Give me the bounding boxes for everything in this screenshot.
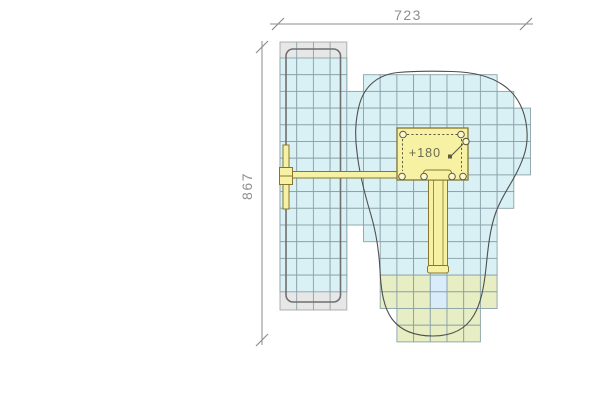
mat-tile xyxy=(330,258,347,275)
safety-tile xyxy=(514,125,531,142)
safety-tile xyxy=(464,108,481,125)
safety-tile xyxy=(480,91,497,108)
safety-tile xyxy=(397,225,414,242)
safety-tile xyxy=(497,125,514,142)
slide-entrance xyxy=(424,170,452,180)
impact-tile xyxy=(414,292,431,309)
safety-tile xyxy=(464,258,481,275)
safety-tile xyxy=(397,258,414,275)
mat-tile xyxy=(280,91,297,108)
safety-tile xyxy=(447,108,464,125)
firemans-pole xyxy=(463,138,469,144)
safety-tile xyxy=(430,91,447,108)
safety-tile xyxy=(480,258,497,275)
site-plan-drawing: +180723867 xyxy=(0,0,600,400)
safety-tile xyxy=(414,91,431,108)
safety-tile xyxy=(480,125,497,142)
safety-tile xyxy=(447,75,464,92)
mat-tile xyxy=(330,142,347,159)
safety-tile xyxy=(380,242,397,259)
mat-tile xyxy=(330,125,347,142)
mat-tile xyxy=(313,75,330,92)
safety-tile xyxy=(364,125,381,142)
mat-tile xyxy=(280,208,297,225)
safety-tile xyxy=(397,242,414,259)
safety-tile xyxy=(447,225,464,242)
mat-tile xyxy=(313,142,330,159)
safety-tile xyxy=(397,91,414,108)
mat-tile xyxy=(297,192,314,209)
safety-tile xyxy=(414,192,431,209)
impact-tile xyxy=(447,309,464,326)
mat-tile xyxy=(297,108,314,125)
safety-tile xyxy=(380,258,397,275)
safety-tile xyxy=(464,91,481,108)
safety-tile xyxy=(364,142,381,159)
platform-post xyxy=(458,131,465,138)
safety-tile xyxy=(414,75,431,92)
safety-tile xyxy=(380,75,397,92)
safety-tile xyxy=(430,108,447,125)
mat-tile xyxy=(330,108,347,125)
platform-post xyxy=(400,131,407,138)
mat-tile xyxy=(280,275,297,292)
mat-tile xyxy=(330,208,347,225)
mat-tile xyxy=(313,91,330,108)
impact-tile xyxy=(430,325,447,342)
safety-tile xyxy=(514,108,531,125)
mat-tile xyxy=(313,208,330,225)
mat-tile xyxy=(313,225,330,242)
safety-tile xyxy=(497,158,514,175)
mat-tile xyxy=(280,242,297,259)
mat-tile xyxy=(280,125,297,142)
mat-tile xyxy=(330,275,347,292)
platform-post xyxy=(421,173,428,180)
beam-junction-node xyxy=(280,168,293,177)
impact-tile xyxy=(397,275,414,292)
safety-tile xyxy=(380,192,397,209)
safety-tile xyxy=(430,75,447,92)
safety-tile xyxy=(380,108,397,125)
impact-tile xyxy=(397,309,414,326)
mat-tile xyxy=(280,75,297,92)
impact-tile xyxy=(464,309,481,326)
mat-tile xyxy=(297,75,314,92)
safety-tile xyxy=(380,91,397,108)
safety-tile xyxy=(480,108,497,125)
safety-tile xyxy=(497,142,514,159)
safety-tile xyxy=(464,225,481,242)
platform-post xyxy=(460,173,467,180)
safety-tile xyxy=(447,91,464,108)
mat-tile xyxy=(330,225,347,242)
impact-tile xyxy=(447,292,464,309)
safety-tile xyxy=(364,91,381,108)
safety-tile xyxy=(397,192,414,209)
mat-tile xyxy=(297,91,314,108)
mat-tile xyxy=(297,58,314,75)
mat-tile xyxy=(313,275,330,292)
safety-tile xyxy=(480,225,497,242)
safety-tile xyxy=(347,208,364,225)
safety-tile xyxy=(414,208,431,225)
safety-tile xyxy=(497,192,514,209)
safety-tile xyxy=(447,258,464,275)
safety-tile xyxy=(397,75,414,92)
safety-tile xyxy=(447,208,464,225)
safety-tile xyxy=(414,108,431,125)
impact-tile xyxy=(480,292,497,309)
safety-tile xyxy=(497,91,514,108)
safety-tile xyxy=(414,242,431,259)
safety-tile xyxy=(364,108,381,125)
safety-tile xyxy=(380,225,397,242)
mat-tile xyxy=(330,91,347,108)
slide-landing-tile xyxy=(430,292,447,309)
slide xyxy=(429,180,448,268)
platform-post xyxy=(399,173,406,180)
safety-tile xyxy=(480,158,497,175)
platform-height-label: +180 xyxy=(409,146,441,160)
platform-post xyxy=(449,173,456,180)
safety-tile xyxy=(447,192,464,209)
impact-tile xyxy=(430,309,447,326)
beam-junction-node xyxy=(280,176,293,185)
safety-tile xyxy=(480,175,497,192)
mat-tile xyxy=(297,142,314,159)
mat-tile xyxy=(330,242,347,259)
impact-tile xyxy=(397,325,414,342)
impact-tile xyxy=(464,275,481,292)
mat-tile xyxy=(313,258,330,275)
pole-anchor xyxy=(448,155,452,159)
mat-tile xyxy=(330,58,347,75)
safety-tile xyxy=(514,142,531,159)
mat-tile xyxy=(280,58,297,75)
balance-beam xyxy=(289,172,397,179)
impact-tile xyxy=(380,275,397,292)
impact-tile xyxy=(414,275,431,292)
safety-tile xyxy=(380,125,397,142)
slide-landing-tile xyxy=(430,275,447,292)
safety-tile xyxy=(414,225,431,242)
mat-tile xyxy=(297,208,314,225)
impact-tile xyxy=(447,275,464,292)
plan-sheet: +180723867 xyxy=(0,0,600,400)
mat-tile xyxy=(297,225,314,242)
impact-tile xyxy=(397,292,414,309)
mat-tile xyxy=(313,242,330,259)
safety-tile xyxy=(347,192,364,209)
safety-tile xyxy=(397,108,414,125)
mat-tile xyxy=(297,275,314,292)
safety-tile xyxy=(497,108,514,125)
safety-tile xyxy=(464,75,481,92)
mat-tile xyxy=(313,192,330,209)
slide-end-cap xyxy=(428,266,449,274)
safety-tile xyxy=(464,242,481,259)
mat-tile xyxy=(330,75,347,92)
mat-tile xyxy=(297,242,314,259)
safety-tile xyxy=(380,142,397,159)
safety-tile xyxy=(347,108,364,125)
mat-tile xyxy=(313,108,330,125)
safety-tile xyxy=(480,192,497,209)
safety-tile xyxy=(447,242,464,259)
mat-tile xyxy=(280,258,297,275)
safety-tile xyxy=(380,208,397,225)
mat-tile xyxy=(280,225,297,242)
safety-tile xyxy=(347,142,364,159)
impact-tile xyxy=(464,325,481,342)
mat-tile xyxy=(297,125,314,142)
mat-tile xyxy=(297,258,314,275)
safety-tile xyxy=(364,225,381,242)
left-dimension-label: 867 xyxy=(239,172,255,200)
safety-tile xyxy=(464,208,481,225)
safety-tile xyxy=(464,192,481,209)
safety-tile xyxy=(364,192,381,209)
mat-tile xyxy=(280,108,297,125)
mat-tile xyxy=(330,192,347,209)
top-dimension-label: 723 xyxy=(394,7,422,23)
impact-tile xyxy=(414,325,431,342)
safety-tile xyxy=(397,208,414,225)
impact-tile xyxy=(414,309,431,326)
safety-tile xyxy=(480,142,497,159)
mat-tile xyxy=(313,125,330,142)
mat-tile xyxy=(313,58,330,75)
